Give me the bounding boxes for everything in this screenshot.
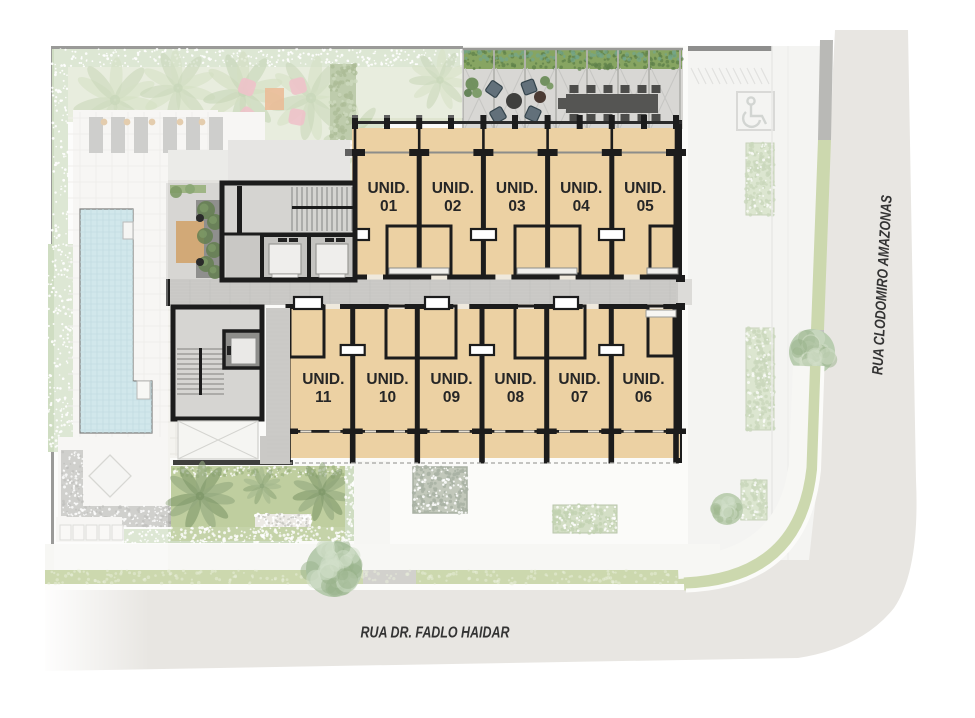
svg-text:09: 09 [443, 389, 461, 406]
svg-text:RUA DR. FADLO HAIDAR: RUA DR. FADLO HAIDAR [361, 625, 510, 642]
svg-text:UNID.: UNID. [622, 371, 664, 388]
svg-text:UNID.: UNID. [496, 180, 538, 197]
svg-text:UNID.: UNID. [430, 371, 472, 388]
svg-text:06: 06 [635, 389, 653, 406]
svg-text:07: 07 [571, 389, 588, 406]
svg-text:08: 08 [507, 389, 525, 406]
svg-text:04: 04 [573, 198, 591, 215]
svg-text:11: 11 [315, 389, 332, 406]
svg-text:03: 03 [508, 198, 526, 215]
svg-text:UNID.: UNID. [366, 371, 408, 388]
svg-text:10: 10 [379, 389, 396, 406]
svg-text:UNID.: UNID. [560, 180, 602, 197]
svg-text:UNID.: UNID. [494, 371, 536, 388]
svg-text:UNID.: UNID. [302, 371, 344, 388]
svg-text:UNID.: UNID. [367, 180, 409, 197]
svg-text:UNID.: UNID. [432, 180, 474, 197]
svg-text:02: 02 [444, 198, 461, 215]
svg-text:UNID.: UNID. [558, 371, 600, 388]
svg-text:05: 05 [637, 198, 655, 215]
svg-text:UNID.: UNID. [624, 180, 666, 197]
svg-text:01: 01 [380, 198, 398, 215]
